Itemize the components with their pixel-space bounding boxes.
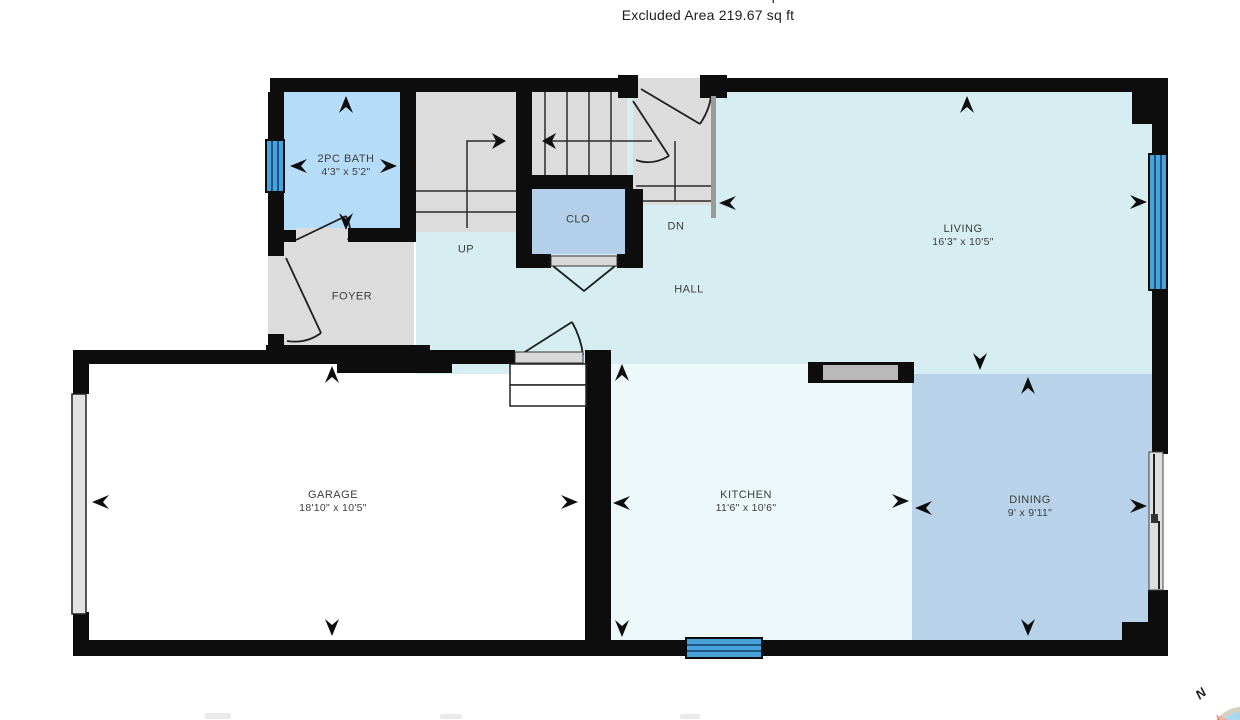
room-name: CLO bbox=[566, 214, 590, 227]
room-dims: 4'3" x 5'2" bbox=[318, 166, 375, 179]
room-label-dining: DINING 9' x 9'11" bbox=[1008, 494, 1052, 520]
room-label-hall: HALL bbox=[674, 284, 704, 297]
cropped-watermark-mark bbox=[205, 713, 231, 719]
room-dims: 18'10" x 10'5" bbox=[299, 502, 367, 515]
cropped-watermark-mark bbox=[680, 714, 700, 719]
cropped-watermark-mark bbox=[440, 714, 462, 719]
garage-door-symbol bbox=[72, 394, 86, 614]
room-dims: 16'3" x 10'5" bbox=[932, 236, 994, 249]
room-name: HALL bbox=[674, 284, 704, 297]
room-name: LIVING bbox=[932, 223, 994, 236]
room-label-stairs-down: DN bbox=[668, 221, 685, 234]
compass-icon bbox=[1204, 701, 1240, 720]
room-name: FOYER bbox=[332, 291, 372, 304]
room-name: GARAGE bbox=[299, 489, 367, 502]
room-label-living: LIVING 16'3" x 10'5" bbox=[932, 223, 994, 249]
steps-symbol bbox=[510, 364, 586, 406]
room-label-closet: CLO bbox=[566, 214, 590, 227]
room-label-stairs-up: UP bbox=[458, 244, 474, 257]
room-name: 2PC BATH bbox=[318, 153, 375, 166]
room-label-bath: 2PC BATH 4'3" x 5'2" bbox=[318, 153, 375, 179]
room-dims: 11'6" x 10'6" bbox=[716, 502, 777, 515]
room-name: KITCHEN bbox=[716, 489, 777, 502]
floorplan-page: Interior Area 525.06 sq ft Excluded Area… bbox=[0, 0, 1240, 720]
room-label-foyer: FOYER bbox=[332, 291, 372, 304]
floorplan-drawing bbox=[0, 0, 1240, 720]
railing-symbol bbox=[711, 96, 716, 218]
room-name: DN bbox=[668, 221, 685, 234]
room-name: DINING bbox=[1008, 494, 1052, 507]
counter-symbol bbox=[808, 362, 914, 383]
room-label-garage: GARAGE 18'10" x 10'5" bbox=[299, 489, 367, 515]
room-label-kitchen: KITCHEN 11'6" x 10'6" bbox=[716, 489, 777, 515]
room-name: UP bbox=[458, 244, 474, 257]
sliding-door-symbol bbox=[1149, 452, 1163, 590]
room-dims: 9' x 9'11" bbox=[1008, 507, 1052, 520]
